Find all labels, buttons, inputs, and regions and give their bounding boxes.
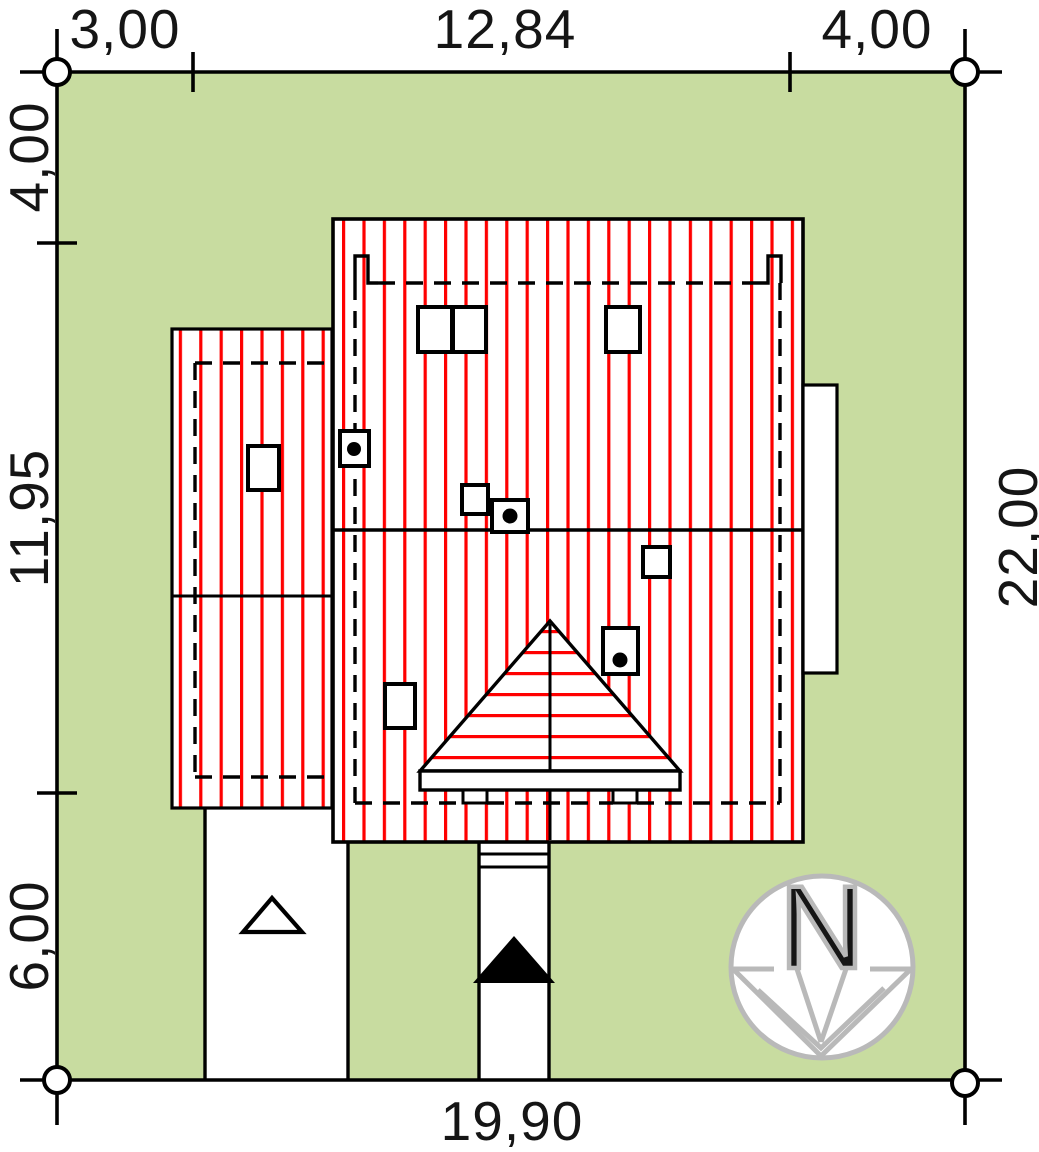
dim-left-upper: 4,00: [0, 101, 60, 212]
survey-point-ne: [952, 59, 978, 85]
roof-window: [643, 547, 670, 577]
survey-point-se: [952, 1070, 978, 1096]
dim-top-middle: 12,84: [434, 0, 577, 60]
roof-window: [462, 485, 488, 514]
chimney: [606, 307, 640, 352]
dim-bottom: 19,90: [441, 1090, 584, 1152]
dim-top-left: 3,00: [69, 0, 180, 60]
dim-left-middle: 11,95: [0, 449, 60, 588]
terrace: [803, 385, 837, 673]
site-plan: N 3,00 12,84 4,00 4,00 11,95 6,00 22,00 …: [0, 0, 1039, 1152]
vent-dot: [613, 653, 628, 668]
survey-point-sw: [44, 1067, 70, 1093]
north-letter: N: [779, 862, 864, 994]
porch-pillar: [463, 790, 487, 803]
site-plan-drawing: N 3,00 12,84 4,00 4,00 11,95 6,00 22,00 …: [0, 0, 1039, 1152]
porch-base: [420, 771, 680, 790]
dim-right: 22,00: [987, 466, 1039, 609]
vent-dot: [503, 509, 518, 524]
chimney: [418, 307, 452, 352]
chimney: [453, 307, 486, 352]
dim-top-right: 4,00: [821, 0, 932, 60]
chimney: [385, 684, 415, 728]
porch-pillar: [613, 790, 637, 803]
garage-chimney: [248, 446, 279, 490]
survey-point-nw: [44, 59, 70, 85]
vent-dot: [347, 442, 361, 456]
dim-left-lower: 6,00: [0, 880, 60, 991]
driveway: [205, 808, 348, 1080]
